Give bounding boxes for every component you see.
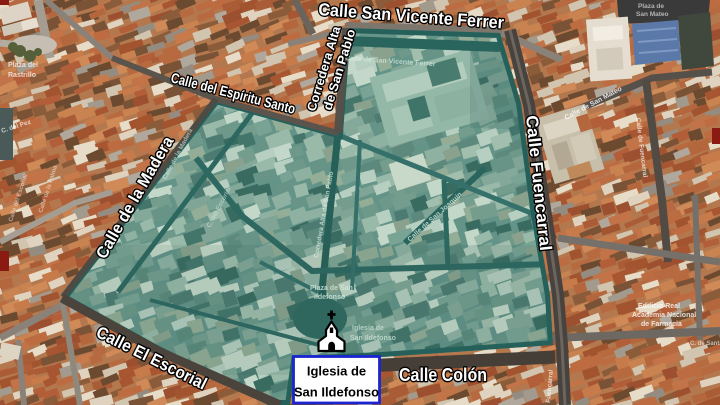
svg-text:Iglesia de: Iglesia de — [307, 364, 366, 379]
svg-text:San Ildefonso: San Ildefonso — [350, 335, 396, 342]
svg-text:Academia Nacional: Academia Nacional — [632, 312, 696, 319]
svg-text:Edificio Real: Edificio Real — [638, 303, 680, 310]
svg-text:Plaza de San: Plaza de San — [310, 285, 353, 292]
svg-text:C. de Santa Maria: C. de Santa Maria — [690, 341, 720, 347]
svg-text:Iglesia de: Iglesia de — [352, 325, 384, 332]
svg-text:San Ildefonso: San Ildefonso — [294, 385, 379, 400]
svg-text:Rastrillo: Rastrillo — [8, 72, 36, 79]
svg-text:Ildefonso: Ildefonso — [314, 294, 345, 301]
svg-text:Plaza de: Plaza de — [638, 3, 664, 10]
svg-text:San Mateo: San Mateo — [636, 11, 669, 18]
svg-text:de Farmacia: de Farmacia — [641, 321, 682, 328]
svg-text:Plaza del: Plaza del — [8, 62, 38, 69]
svg-text:Calle Colón: Calle Colón — [399, 365, 487, 385]
